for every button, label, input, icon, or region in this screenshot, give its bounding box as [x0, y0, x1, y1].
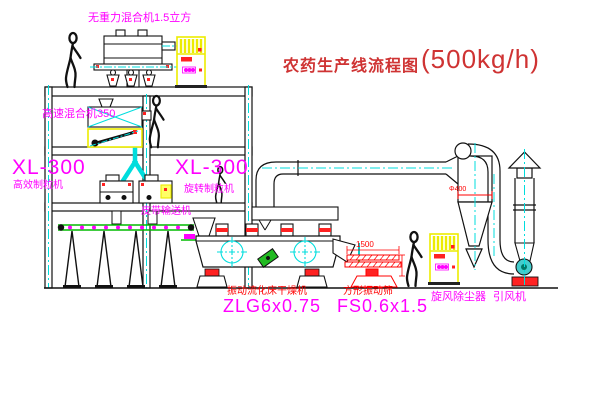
cyclone-diameter-dimension: Φ400 [449, 186, 466, 193]
control-cabinet-right [428, 234, 460, 285]
air-duct [256, 156, 458, 207]
sieve-length-dimension: 1500 [356, 241, 374, 249]
cyclone-separator [455, 143, 500, 270]
granulator-left-model: XL-300 [12, 157, 86, 179]
gravity-mixer-label: 无重力混合机1.5立方 [88, 13, 191, 25]
title-capacity: (500kg/h) [421, 44, 540, 75]
high-speed-mixer [88, 99, 151, 147]
cyclone-label: 旋风除尘器 [431, 292, 486, 304]
gravity-mixer [90, 30, 180, 87]
induced-draft-fan [488, 240, 538, 286]
exhaust-stack [509, 149, 540, 286]
control-cabinet-top [175, 37, 207, 88]
drawing-title: 农药生产线流程图 (500kg/h) [283, 44, 540, 76]
high-speed-mixer-label: 高速混合机350 [42, 109, 115, 121]
granulator-left-name: 高效制粒机 [13, 181, 63, 192]
worker-figure-top [66, 33, 81, 87]
belt-conveyor [58, 224, 194, 288]
granulator-center-model: XL-300 [175, 157, 249, 179]
belt-conveyor-label: 皮带输送机 [141, 207, 191, 218]
fluid-bed-dryer [181, 207, 363, 287]
fan-label: 引风机 [493, 292, 526, 304]
vibrating-sieve [345, 246, 405, 287]
worker-figure-sieve [407, 232, 422, 286]
granulator-left [100, 175, 133, 203]
granulator-center-name: 旋转制粒机 [184, 185, 234, 196]
pesticide-production-line-drawing: 农药生产线流程图 (500kg/h) 无重力混合机1.5立方 高速混合机350 … [0, 0, 600, 403]
worker-figure-mid [150, 96, 164, 147]
sieve-model-label: FS0.6x1.5 [337, 297, 428, 316]
dryer-model-label: ZLG6x0.75 [223, 297, 321, 316]
title-text: 农药生产线流程图 [283, 44, 419, 76]
